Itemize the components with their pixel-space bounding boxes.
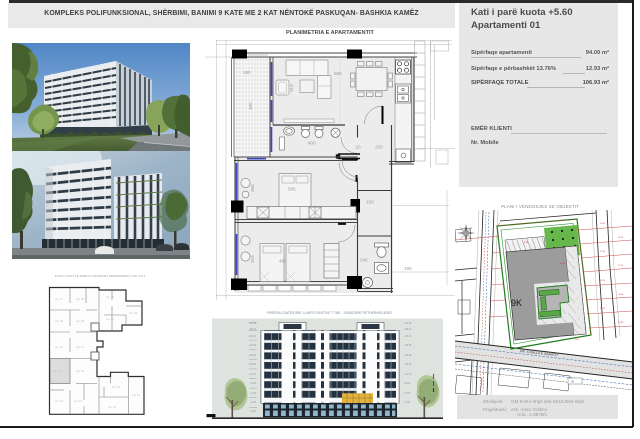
svg-text:Ap. 13: Ap. 13 [74,399,83,403]
svg-text:21.09: 21.09 [600,251,606,253]
svg-text:18.20: 18.20 [618,237,624,239]
svg-text:150: 150 [366,200,374,205]
svg-text:+15.80: +15.80 [404,363,412,366]
svg-text:15.80: 15.80 [618,322,624,324]
svg-text:300: 300 [250,184,255,192]
svg-text:Ap. 11: Ap. 11 [76,345,84,349]
svg-text:17.35: 17.35 [618,265,624,267]
svg-text:490: 490 [279,259,287,264]
svg-text:+12.70: +12.70 [404,373,412,376]
svg-text:16.40: 16.40 [618,294,624,296]
svg-text:+18.90: +18.90 [404,354,412,357]
svg-text:+28.20: +28.20 [404,328,412,331]
svg-text:Ap. 07: Ap. 07 [55,297,64,301]
svg-text:+25.10: +25.10 [249,335,257,338]
svg-text:+9.60: +9.60 [250,382,257,385]
svg-text:+3.40: +3.40 [250,401,257,404]
svg-text:+6.50: +6.50 [404,392,411,395]
svg-text:Ap. 09: Ap. 09 [76,319,85,323]
svg-text:180: 180 [404,266,412,271]
svg-text:Ap. 08: Ap. 08 [55,319,64,323]
svg-text:+25.10: +25.10 [404,335,412,338]
svg-text:+18.90: +18.90 [249,354,257,357]
svg-text:Ap. 01: Ap. 01 [53,369,62,373]
svg-text:19.22: 19.22 [600,308,606,310]
svg-text:7k: 7k [571,380,575,384]
svg-text:+31.30: +31.30 [404,322,412,325]
svg-text:315: 315 [250,255,255,263]
svg-text:Ap. 16: Ap. 16 [132,393,141,397]
svg-text:+9.60: +9.60 [404,382,411,385]
svg-text:Ap. 06: Ap. 06 [76,297,85,301]
svg-text:Ap. 04: Ap. 04 [129,311,138,315]
svg-text:Ap. 10: Ap. 10 [55,345,64,349]
svg-text:20.14: 20.14 [600,280,606,282]
svg-text:+12.70: +12.70 [249,373,257,376]
svg-text:+22.00: +22.00 [404,344,412,347]
svg-text:180: 180 [243,70,251,75]
svg-text:Ap. 05: Ap. 05 [106,295,115,299]
svg-text:665: 665 [334,71,342,76]
svg-text:+22.00: +22.00 [249,344,257,347]
svg-text:+6.50: +6.50 [250,392,257,395]
svg-text:245: 245 [360,258,368,263]
svg-text:Ap. 14: Ap. 14 [55,399,64,403]
svg-text:+0.00: +0.00 [250,410,257,413]
svg-text:9K: 9K [511,298,522,308]
svg-text:Ap. 15: Ap. 15 [112,385,121,389]
svg-text:Ap. 03: Ap. 03 [106,317,115,321]
svg-text:+15.80: +15.80 [249,363,257,366]
svg-text:+3.40: +3.40 [404,401,411,404]
svg-text:23.41: 23.41 [600,223,606,225]
svg-text:Ap. 12: Ap. 12 [108,405,117,409]
svg-text:10: 10 [356,145,362,150]
svg-text:250: 250 [375,145,383,150]
svg-text:585: 585 [288,187,296,192]
svg-text:310: 310 [289,84,294,92]
svg-text:400: 400 [308,141,316,146]
svg-text:480: 480 [248,102,253,110]
svg-text:14.6: 14.6 [575,339,580,341]
svg-text:12.50: 12.50 [560,263,566,265]
svg-text:Ap. 02: Ap. 02 [76,369,85,373]
